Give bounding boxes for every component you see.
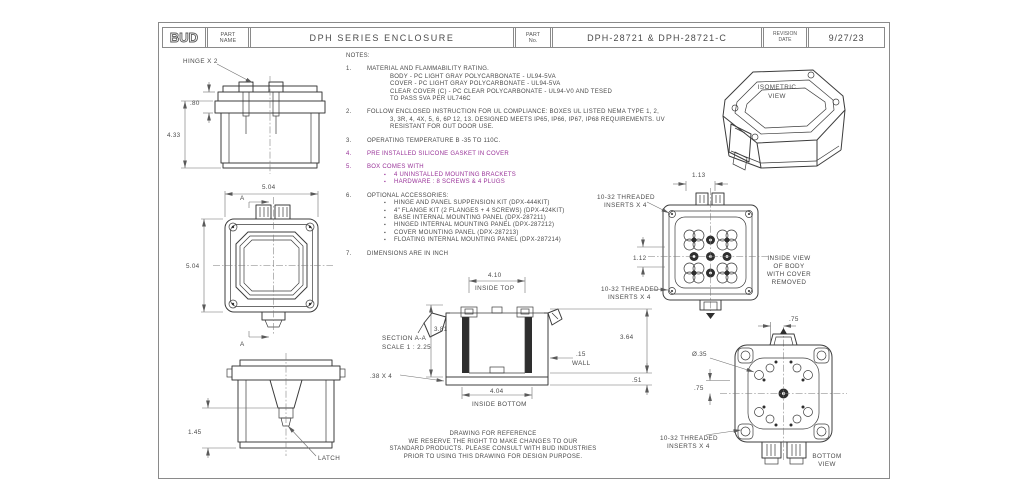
inside-top-label: INSIDE TOP (475, 285, 514, 292)
bottom-view-geometry (720, 327, 847, 464)
inside-view-label-line2: OF BODY (773, 263, 805, 270)
bud-logo: BUD (163, 28, 205, 47)
inside-bottom-label: INSIDE BOTTOM (472, 401, 527, 408)
clover-cluster-tl (684, 230, 704, 250)
dim-base: .51 (632, 377, 642, 384)
part-name-label: PART NAME (205, 28, 248, 47)
front-view-geometry (213, 197, 333, 335)
dim-width: 5.04 (262, 184, 276, 191)
disclaimer-line2: WE RESERVE THE RIGHT TO MAKE CHANGES TO … (372, 439, 614, 447)
isometric-view-drawing: ISOMETRIC VIEW (695, 48, 870, 178)
part-no-label: PART No. (513, 28, 550, 47)
side-view-bottom-drawing: 1.45 LATCH (180, 348, 350, 470)
wall-label: WALL (572, 360, 591, 367)
dim-left-spacing: .75 (694, 385, 704, 392)
part-name-label-line2: NAME (220, 38, 237, 44)
bottom-view-drawing: .75 Ø.35 .75 10-32 THREADED INSERTS X 4 … (650, 312, 875, 475)
inside-view-geometry (648, 188, 773, 319)
notes-heading: NOTES: (346, 53, 668, 60)
note-2: 2.FOLLOW ENCLOSED INSTRUCTION FOR UL COM… (346, 109, 668, 116)
dim-overall-height: 3.64 (620, 334, 634, 341)
note-1-line: BODY - PC LIGHT GRAY POLYCARBONATE - UL9… (346, 74, 668, 81)
disclaimer-block: DRAWING FOR REFERENCE WE RESERVE THE RIG… (372, 431, 614, 461)
inside-view-drawing: 1.13 10-32 THREADED INSERTS X 4 1.12 10-… (593, 163, 818, 321)
revision-date-label: REVISION DATE (761, 28, 806, 47)
disclaimer-line3: STANDARD PRODUCTS. PLEASE CONSULT WITH B… (372, 446, 614, 454)
dim-rib: .38 X 4 (370, 373, 392, 380)
clover-cluster-tr (717, 230, 737, 250)
bottom-view-label-line2: VIEW (818, 461, 836, 468)
section-arrow-letter-top: A (240, 195, 245, 202)
clover-cluster-bl (684, 263, 704, 283)
dim-depth: 3.81 (434, 326, 448, 333)
inserts-callout-line2: INSERTS X 4 (667, 443, 710, 450)
disclaimer-line4: PRIOR TO USING THIS DRAWING FOR DESIGN P… (372, 454, 614, 462)
section-scale-label: SCALE 1 : 2.25 (382, 344, 431, 351)
side-view-top-geometry (215, 76, 325, 174)
note-4: 4.PRE INSTALLED SILICONE GASKET IN COVER (346, 151, 668, 158)
side-view-top-drawing: HINGE X 2 .80 4.33 (165, 52, 350, 187)
note-1-line: COVER - PC LIGHT GRAY POLYCARBONATE - UL… (346, 81, 668, 88)
inside-view-label-line4: REMOVED (772, 279, 807, 286)
dim-lid-height: .80 (190, 100, 200, 107)
latch-callout: LATCH (318, 455, 340, 462)
section-arrow-letter-bottom: A (240, 341, 245, 348)
hinge-callout: HINGE X 2 (183, 58, 218, 65)
bottom-view-label-line1: BOTTOM (812, 453, 841, 460)
inserts-callout-bottom-line2: INSERTS X 4 (608, 294, 651, 301)
note-1: 1.MATERIAL AND FLAMMABILITY RATING. (346, 66, 668, 73)
part-no-label-line2: No. (529, 38, 538, 44)
note-1-line: CLEAR COVER (C) - PC CLEAR POLYCARBONATE… (346, 89, 668, 96)
note-3: 3.OPERATING TEMPERATURE B -35 TO 110C. (346, 138, 668, 145)
inserts-callout-top-line2: INSERTS X 4 (604, 202, 647, 209)
dim-body-height: 4.33 (167, 132, 181, 139)
inserts-callout-bottom-line1: 10-32 THREADED (601, 286, 659, 293)
front-view-drawing: 5.04 5.04 A A (185, 175, 345, 347)
note-2-line: RESISTANT FOR OUT DOOR USE. (346, 124, 668, 131)
inserts-callout-top-line1: 10-32 THREADED (597, 194, 655, 201)
dim-inside-bottom: 4.04 (490, 388, 504, 395)
revision-date-value: 9/27/23 (806, 28, 884, 47)
dim-wall: .15 (576, 351, 586, 358)
dim-top-spacing: .75 (789, 316, 799, 323)
side-view-bottom-dimensions: 1.45 LATCH (188, 398, 340, 462)
dim-top-spacing: 1.13 (692, 172, 706, 179)
section-aa-geometry (418, 307, 562, 385)
inserts-callout-line1: 10-32 THREADED (660, 435, 718, 442)
section-label: SECTION A-A (382, 335, 427, 342)
dim-inside-top: 4.10 (488, 272, 502, 279)
dim-height: 5.04 (186, 263, 200, 270)
dim-latch-height: 1.45 (188, 429, 202, 436)
bottom-view-dimensions: .75 Ø.35 .75 10-32 THREADED INSERTS X 4 … (660, 316, 842, 468)
clover-cluster-br (717, 263, 737, 283)
side-view-bottom-geometry (227, 353, 345, 456)
inside-view-label-line3: WITH COVER (767, 271, 811, 278)
revision-label-line2: DATE (779, 38, 792, 44)
dim-left-spacing: 1.12 (633, 255, 647, 262)
part-name-value: DPH SERIES ENCLOSURE (248, 28, 513, 47)
part-no-value: DPH-28721 & DPH-28721-C (550, 28, 761, 47)
note-1-line: TO PASS 5VA PER UL746C (346, 96, 668, 103)
disclaimer-line1: DRAWING FOR REFERENCE (372, 431, 614, 439)
title-block: BUD PART NAME DPH SERIES ENCLOSURE PART … (162, 27, 885, 48)
note-2-line: 3, 3R, 4, 4X, 5, 6, 6P 12, 13. DESIGNED … (346, 117, 668, 124)
isometric-label-line1: ISOMETRIC (758, 84, 797, 91)
dia-callout: Ø.35 (692, 351, 707, 358)
front-view-dimensions: 5.04 5.04 A A (186, 184, 318, 348)
inside-view-label-line1: INSIDE VIEW (767, 255, 810, 262)
isometric-label-line2: VIEW (768, 93, 786, 100)
